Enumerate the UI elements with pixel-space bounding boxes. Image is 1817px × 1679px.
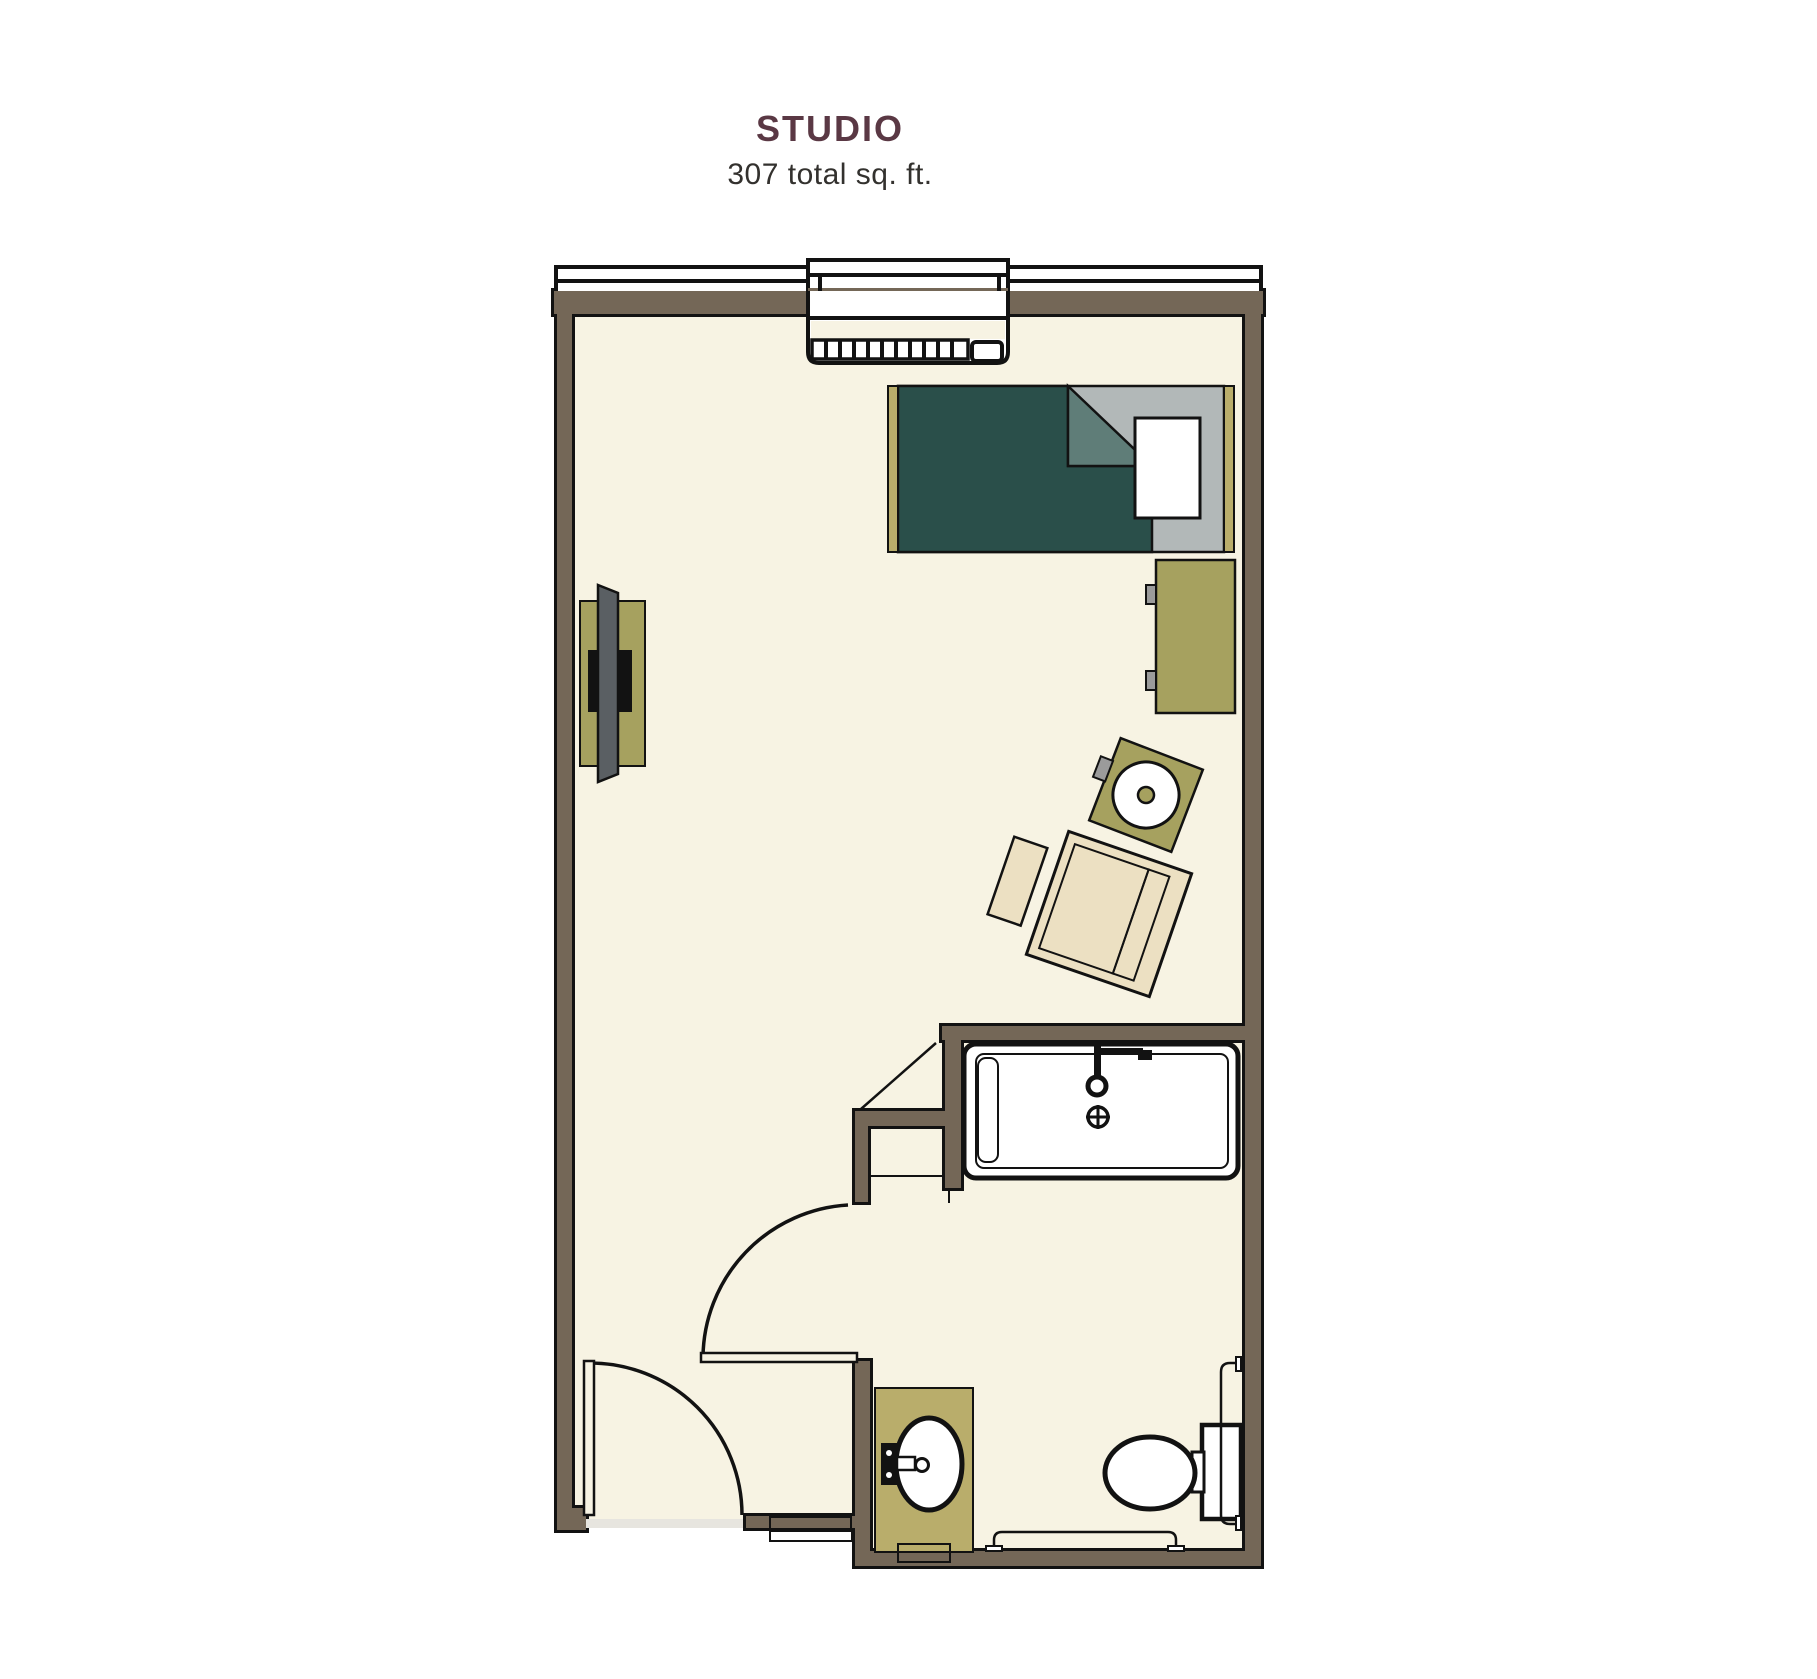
ptac-heater-unit	[808, 260, 1008, 363]
dresser	[1146, 560, 1235, 713]
dresser-knob	[1146, 585, 1156, 604]
shower-tub	[964, 1044, 1238, 1178]
ptac-control-panel	[972, 342, 1002, 361]
wall-step-detail	[770, 1531, 852, 1541]
entry-door-panel	[584, 1361, 594, 1515]
tv-screen	[598, 585, 618, 782]
dresser-knob	[1146, 671, 1156, 690]
bathroom-door-panel	[701, 1353, 857, 1362]
ptac-grille	[812, 340, 968, 359]
sink-vanity	[875, 1388, 973, 1562]
floor-plan-drawing	[0, 0, 1817, 1679]
bed-headboard	[1224, 386, 1234, 552]
wall-tv	[580, 585, 645, 782]
floor-plan-page: STUDIO 307 total sq. ft.	[0, 0, 1817, 1679]
bed-footboard	[888, 386, 898, 552]
bed	[888, 386, 1234, 552]
pillow	[1135, 418, 1200, 518]
entry-threshold	[586, 1519, 743, 1528]
toilet-bowl	[1105, 1437, 1195, 1509]
